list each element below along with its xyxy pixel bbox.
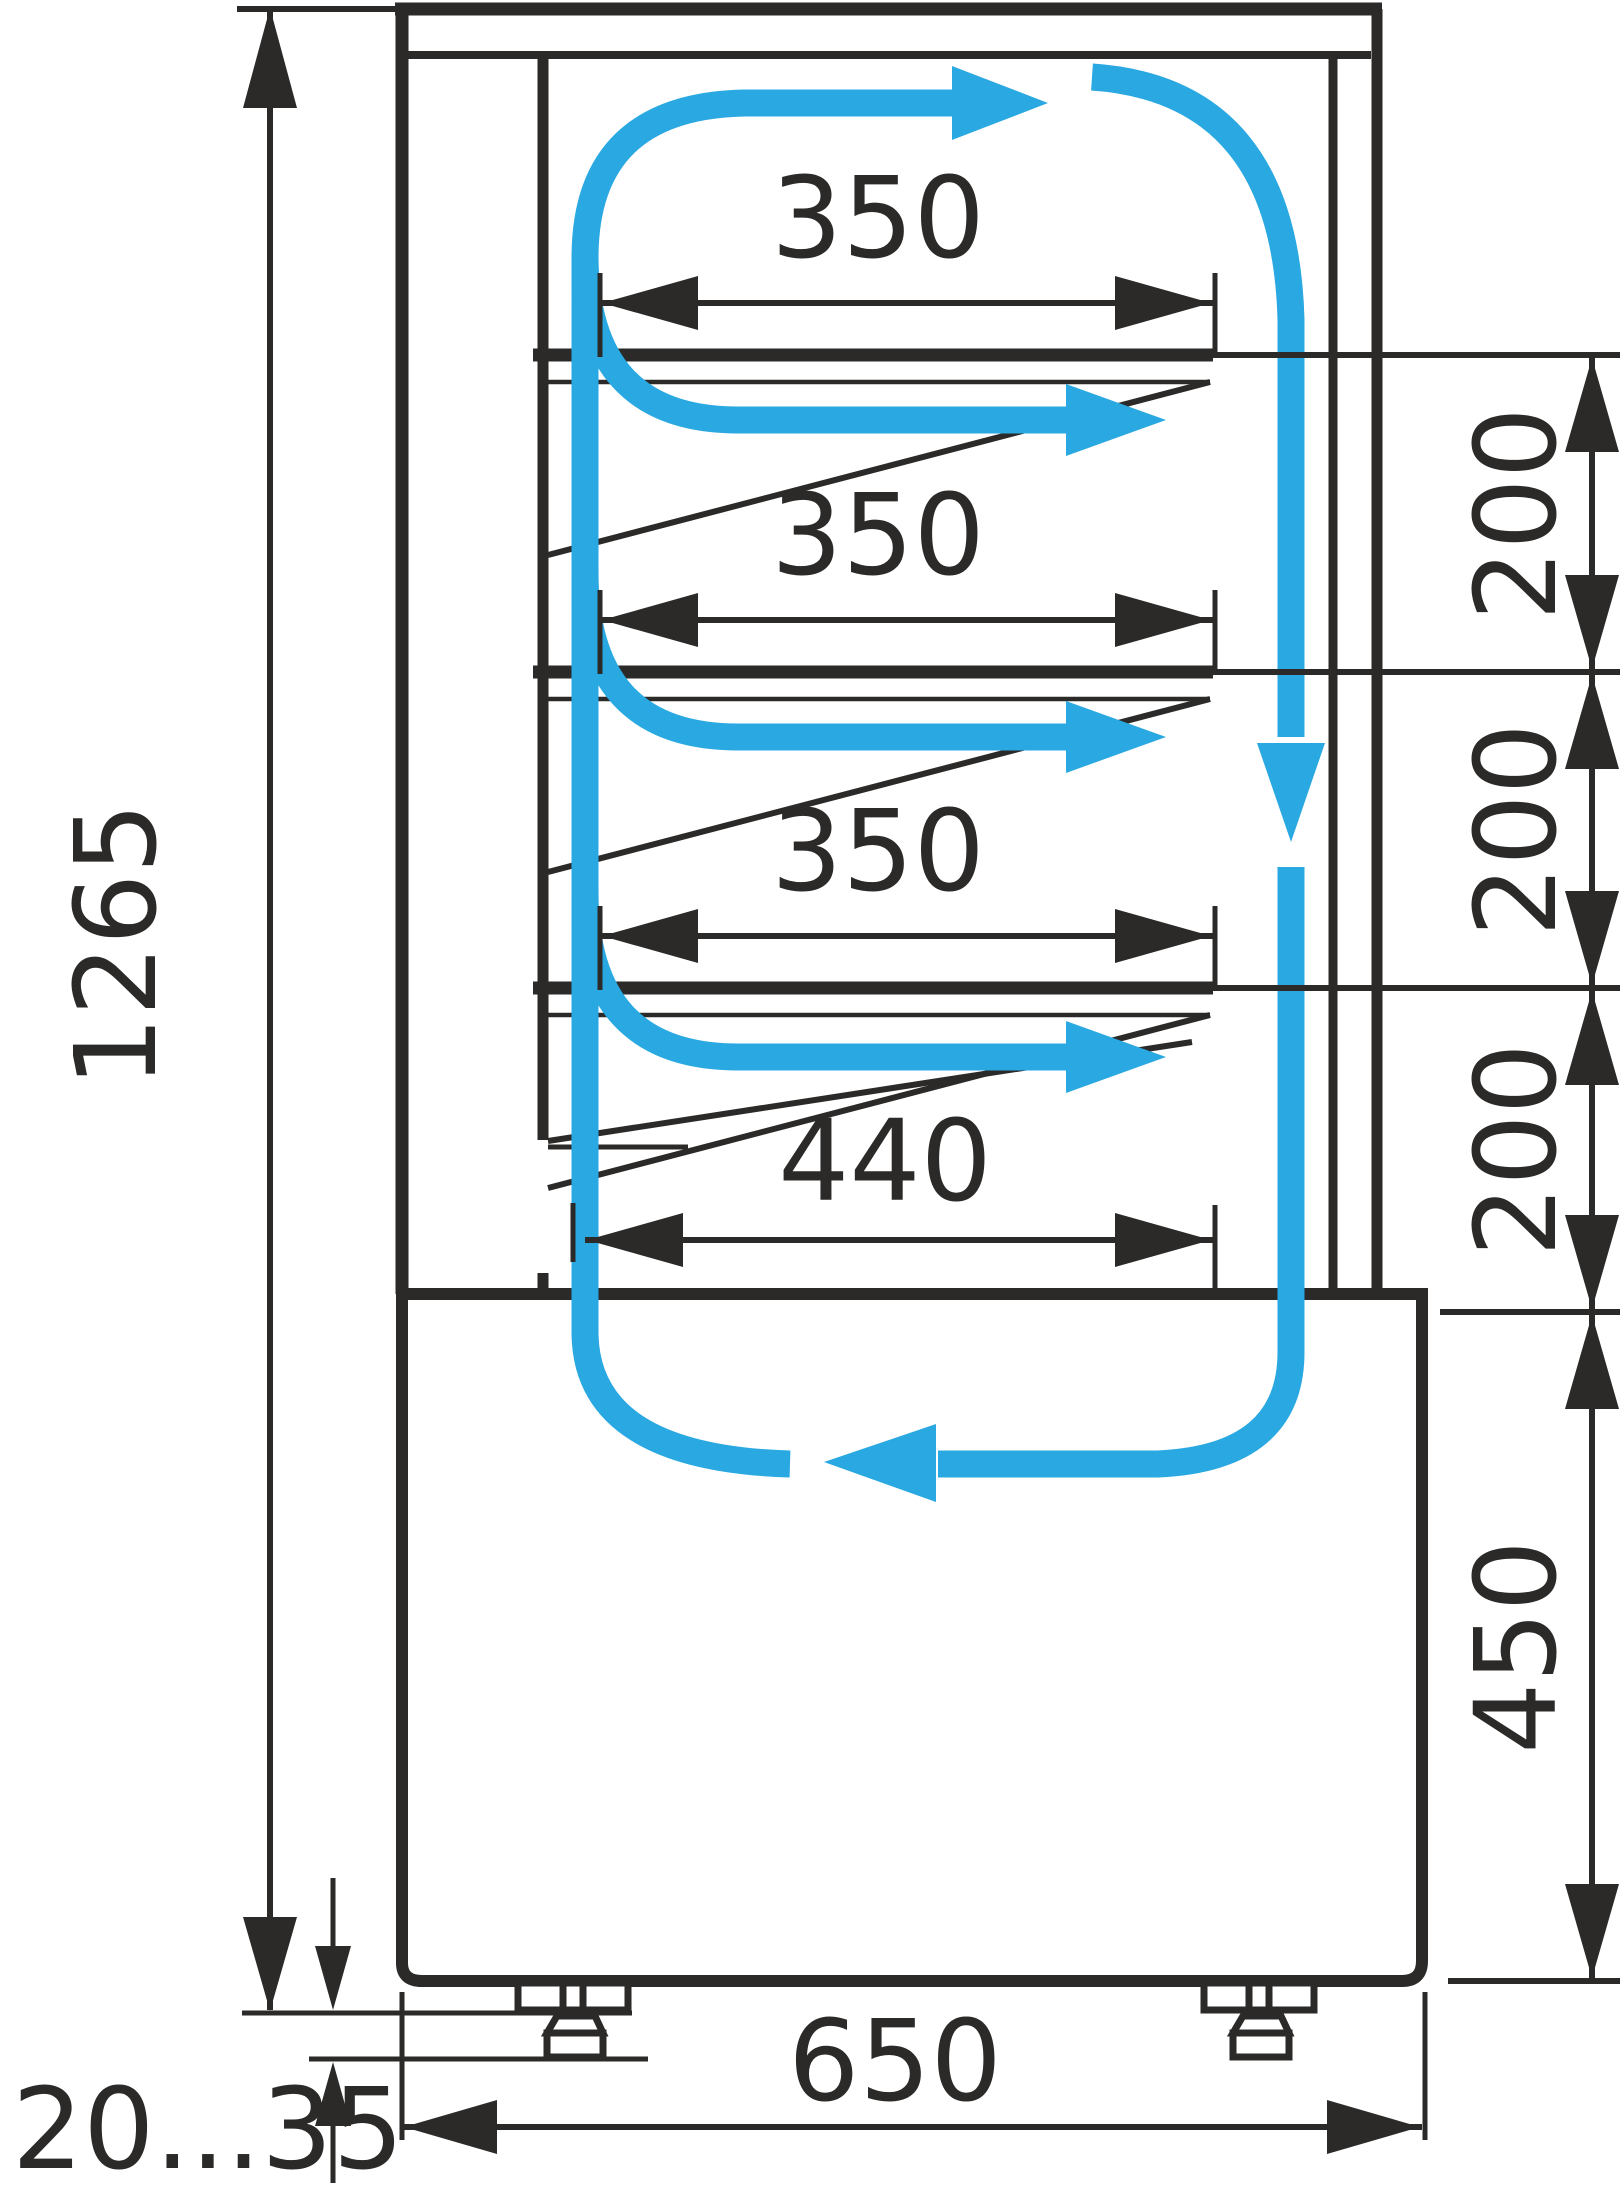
dim-label-shelf-gap-3: 200 bbox=[1452, 1043, 1582, 1257]
dim-label-bottom-shelf-width: 440 bbox=[778, 1097, 992, 1227]
dim-shelf-gap-1: 200 bbox=[1452, 407, 1582, 621]
dim-shelf-width-1: 350 bbox=[600, 154, 1215, 357]
dim-bottom-shelf-width: 440 bbox=[573, 1097, 1215, 1292]
dim-label-base-depth: 650 bbox=[788, 1997, 1002, 2127]
dim-label-shelf-gap-1: 200 bbox=[1452, 407, 1582, 621]
dim-label-feet-adjustment: 20...35 bbox=[12, 2065, 404, 2185]
air-curtain-down-arrow-icon bbox=[1257, 743, 1325, 842]
dim-label-shelf-width-1: 350 bbox=[771, 154, 985, 284]
dim-shelf-gap-3: 200 bbox=[1452, 1043, 1582, 1257]
dim-label-overall-height: 1265 bbox=[52, 802, 182, 1087]
drawing-page: 1265 350 350 350 bbox=[0, 0, 1623, 2185]
right-foot bbox=[1204, 1983, 1314, 2057]
dim-base-height: 450 bbox=[1452, 1540, 1582, 1754]
top-jet-arrow-icon bbox=[952, 66, 1048, 140]
dim-shelf-width-2: 350 bbox=[600, 471, 1215, 674]
dim-label-shelf-width-2: 350 bbox=[771, 471, 985, 601]
dim-label-base-height: 450 bbox=[1452, 1540, 1582, 1754]
dim-shelf-gap-2: 200 bbox=[1452, 723, 1582, 937]
left-foot bbox=[518, 1983, 628, 2057]
dim-overall-height: 1265 bbox=[52, 8, 297, 2011]
dim-shelf-width-3: 350 bbox=[600, 787, 1215, 990]
base-return-arrow-icon bbox=[824, 1424, 936, 1502]
base-cabinet-outline bbox=[402, 1290, 1422, 1981]
dim-label-shelf-gap-2: 200 bbox=[1452, 723, 1582, 937]
display-case-diagram: 1265 350 350 350 bbox=[0, 0, 1623, 2185]
dim-label-shelf-width-3: 350 bbox=[771, 787, 985, 917]
case-structure bbox=[237, 3, 1428, 1981]
dim-feet-adjustment: 20...35 bbox=[12, 1878, 404, 2185]
